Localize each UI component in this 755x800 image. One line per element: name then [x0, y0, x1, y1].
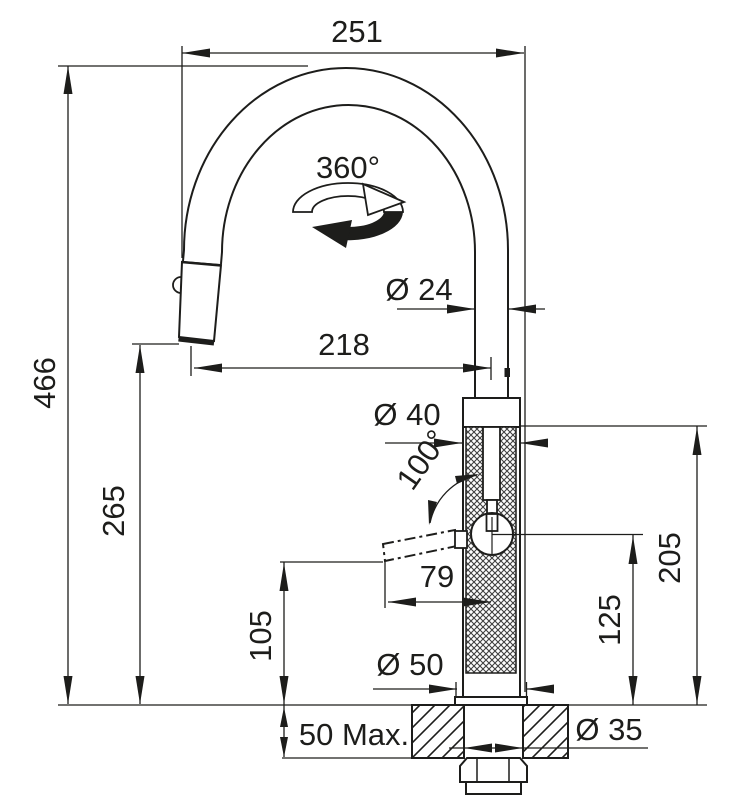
body-collar — [463, 398, 520, 427]
base-flange — [455, 697, 527, 705]
dim-label-handle-height: 105 — [243, 610, 278, 662]
shank-end — [466, 782, 521, 794]
dim-label-handle-angle: 100° — [389, 423, 454, 496]
dim-label-max-counter-thickness: 50 Max. — [299, 717, 409, 752]
rotation-arrow-symbol — [293, 183, 404, 248]
drawing-canvas: 251 466 265 360° Ø 24 218 Ø 40 100° 79 1… — [0, 0, 755, 800]
dim-label-total-height: 466 — [27, 357, 62, 409]
dim-label-spout-width: 251 — [331, 14, 383, 49]
dim-label-base-diameter: Ø 50 — [376, 647, 443, 682]
faucet-dimension-drawing: 251 466 265 360° Ø 24 218 Ø 40 100° 79 1… — [0, 0, 755, 800]
dim-label-spout-reach: 218 — [318, 327, 370, 362]
dim-label-outlet-height: 265 — [96, 485, 131, 537]
handle-phantom — [383, 530, 467, 561]
mounting-nut — [460, 758, 527, 782]
shank — [464, 705, 523, 758]
dim-label-valve-center-height: 125 — [592, 594, 627, 646]
dim-label-body-top-height: 205 — [652, 532, 687, 584]
handle-up-slot — [483, 427, 500, 500]
handle-stem — [487, 500, 497, 514]
spray-head-ring — [173, 277, 181, 293]
handle-hub — [455, 531, 467, 548]
dim-label-hole-diameter: Ø 35 — [575, 712, 642, 747]
spray-head — [179, 262, 221, 341]
dim-label-pipe-diameter: Ø 24 — [385, 272, 452, 307]
handle-lever-phantom — [383, 530, 457, 561]
dim-label-handle-length: 79 — [420, 559, 454, 594]
pipe-joint-mark — [505, 368, 511, 377]
dim-label-swivel-angle: 360° — [316, 150, 380, 185]
countertop-section-right — [523, 705, 568, 758]
dimension-labels: 251 466 265 360° Ø 24 218 Ø 40 100° 79 1… — [27, 14, 687, 752]
countertop-section-left — [412, 705, 464, 758]
rotation-arrowhead-black — [312, 220, 352, 248]
